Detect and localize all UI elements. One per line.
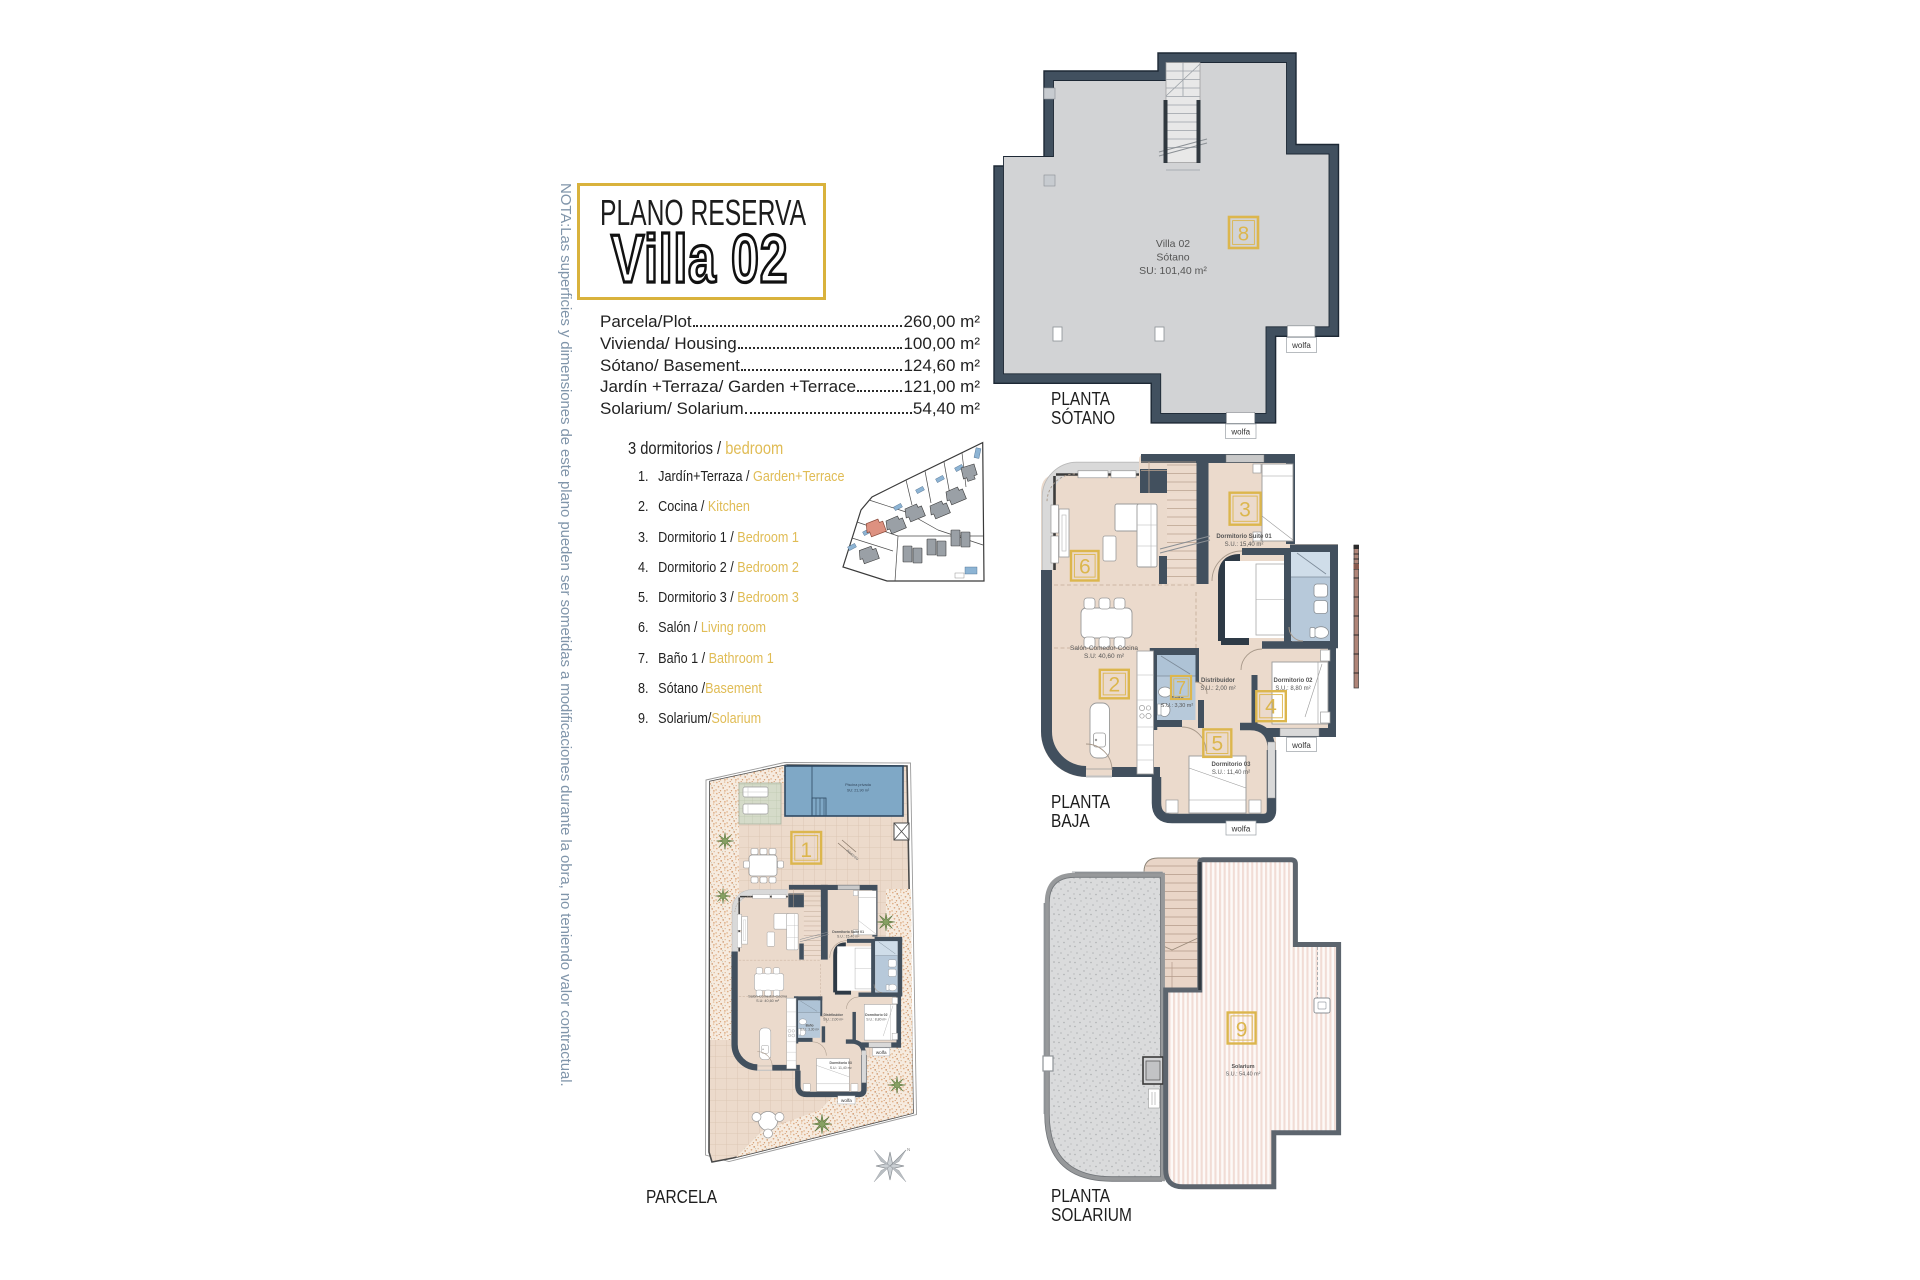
svg-text:1: 1 [800, 839, 812, 862]
svg-text:wolfa: wolfa [1291, 341, 1311, 350]
svg-text:Dormitorio 02: Dormitorio 02 [1273, 678, 1313, 684]
svg-text:Dormitorio 03: Dormitorio 03 [1211, 762, 1251, 768]
svg-text:Solarium: Solarium [1231, 1064, 1254, 1070]
svg-text:SU: 21,90 m²: SU: 21,90 m² [847, 789, 870, 793]
svg-text:9: 9 [1236, 1019, 1248, 1042]
svg-text:Piscina privada: Piscina privada [845, 783, 872, 787]
svg-text:wolfa: wolfa [1291, 741, 1311, 750]
svg-text:S.U.: 54,40 m²: S.U.: 54,40 m² [1226, 1072, 1261, 1078]
svg-text:S.U.: 3,30 m²: S.U.: 3,30 m² [1161, 703, 1194, 709]
svg-text:Distribuidor: Distribuidor [1201, 678, 1236, 684]
svg-text:S.U.: 11,40 m²: S.U.: 11,40 m² [1212, 770, 1250, 776]
svg-text:S.U.: 15,40 m²: S.U.: 15,40 m² [1225, 542, 1264, 548]
svg-text:S.U: 40,60 m²: S.U: 40,60 m² [1084, 653, 1125, 660]
svg-text:6: 6 [1079, 556, 1091, 579]
svg-text:Dormitorio Suite 01: Dormitorio Suite 01 [1216, 534, 1272, 540]
svg-text:3: 3 [1239, 499, 1251, 522]
svg-text:8: 8 [1238, 223, 1249, 246]
svg-text:2: 2 [1108, 674, 1120, 697]
svg-text:4: 4 [1265, 696, 1277, 719]
svg-text:N: N [907, 1147, 910, 1152]
svg-text:S.U.: 2,00 m²: S.U.: 2,00 m² [1200, 686, 1235, 692]
svg-text:Salón-Comedor-Cocina: Salón-Comedor-Cocina [1070, 645, 1138, 652]
svg-text:wolfa: wolfa [1230, 428, 1250, 437]
svg-text:SU: 101,40 m²: SU: 101,40 m² [1139, 265, 1207, 277]
svg-text:wolfa: wolfa [1231, 825, 1251, 834]
svg-text:Villa 02: Villa 02 [1156, 238, 1190, 250]
svg-text:5: 5 [1211, 733, 1223, 756]
svg-text:Sótano: Sótano [1156, 252, 1189, 264]
svg-text:7: 7 [1176, 678, 1186, 698]
